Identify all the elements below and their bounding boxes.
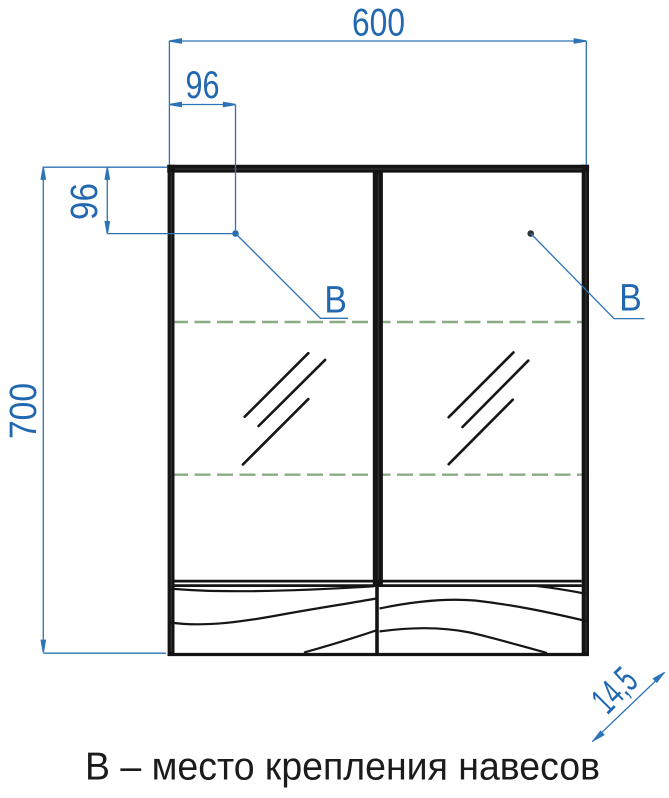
svg-text:96: 96	[64, 183, 106, 220]
svg-text:600: 600	[352, 2, 405, 45]
svg-text:B: B	[324, 279, 347, 321]
svg-text:96: 96	[186, 64, 220, 107]
svg-text:B: B	[619, 278, 642, 320]
svg-text:700: 700	[3, 383, 45, 439]
svg-text:В – место крепления навесов: В – место крепления навесов	[85, 746, 600, 789]
